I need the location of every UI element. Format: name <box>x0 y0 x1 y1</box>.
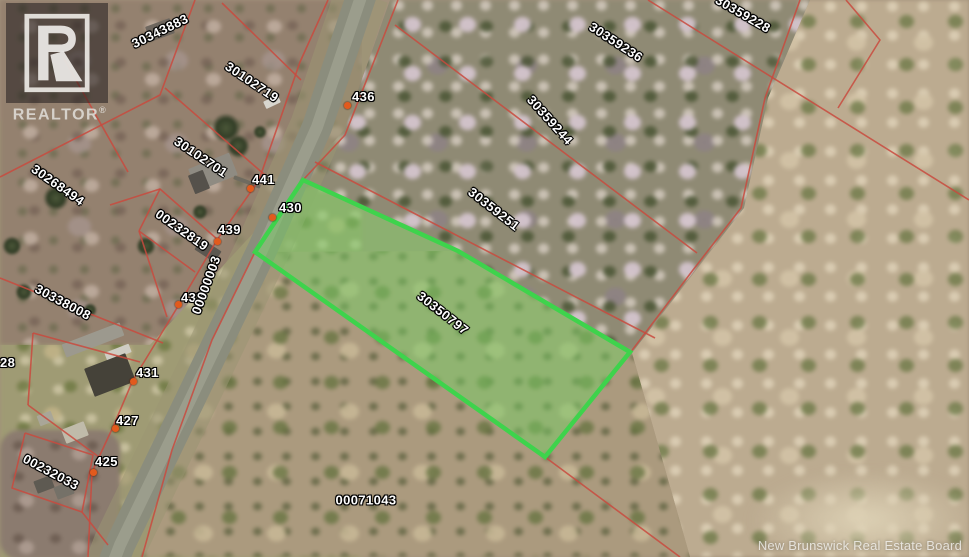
map-canvas[interactable]: 4364414394304334314274252830343883301027… <box>0 0 969 557</box>
parcel-label-00071043: 00071043 <box>335 494 396 507</box>
realtor-logo: REALTOR® <box>6 3 114 127</box>
boundary-line <box>648 0 969 200</box>
civic-number-430: 430 <box>279 201 302 214</box>
realtor-logo-mark <box>6 3 108 103</box>
boundary-line <box>28 333 33 405</box>
boundary-line <box>33 333 140 362</box>
boundary-line <box>838 0 880 108</box>
civic-number-425: 425 <box>95 455 118 468</box>
boundary-line <box>395 25 697 253</box>
boundary-line <box>139 231 167 317</box>
boundary-line <box>630 0 800 353</box>
civic-number-441: 441 <box>252 173 275 186</box>
gis-overlay <box>0 0 969 557</box>
civic-number-431: 431 <box>136 366 159 379</box>
boundary-line <box>545 457 680 557</box>
civic-dot-430 <box>269 214 276 221</box>
civic-number-28: 28 <box>0 356 15 369</box>
civic-number-427: 427 <box>116 414 139 427</box>
realtor-r-icon <box>24 12 90 94</box>
boundary-line <box>28 405 103 460</box>
watermark: New Brunswick Real Estate Board <box>758 538 962 553</box>
civic-number-439: 439 <box>218 223 241 236</box>
civic-dot-436 <box>344 102 351 109</box>
registered-mark: ® <box>99 105 107 115</box>
civic-dot-425 <box>90 469 97 476</box>
realtor-wordmark: REALTOR® <box>4 105 116 124</box>
civic-dot-439 <box>214 238 221 245</box>
civic-number-436: 436 <box>352 90 375 103</box>
